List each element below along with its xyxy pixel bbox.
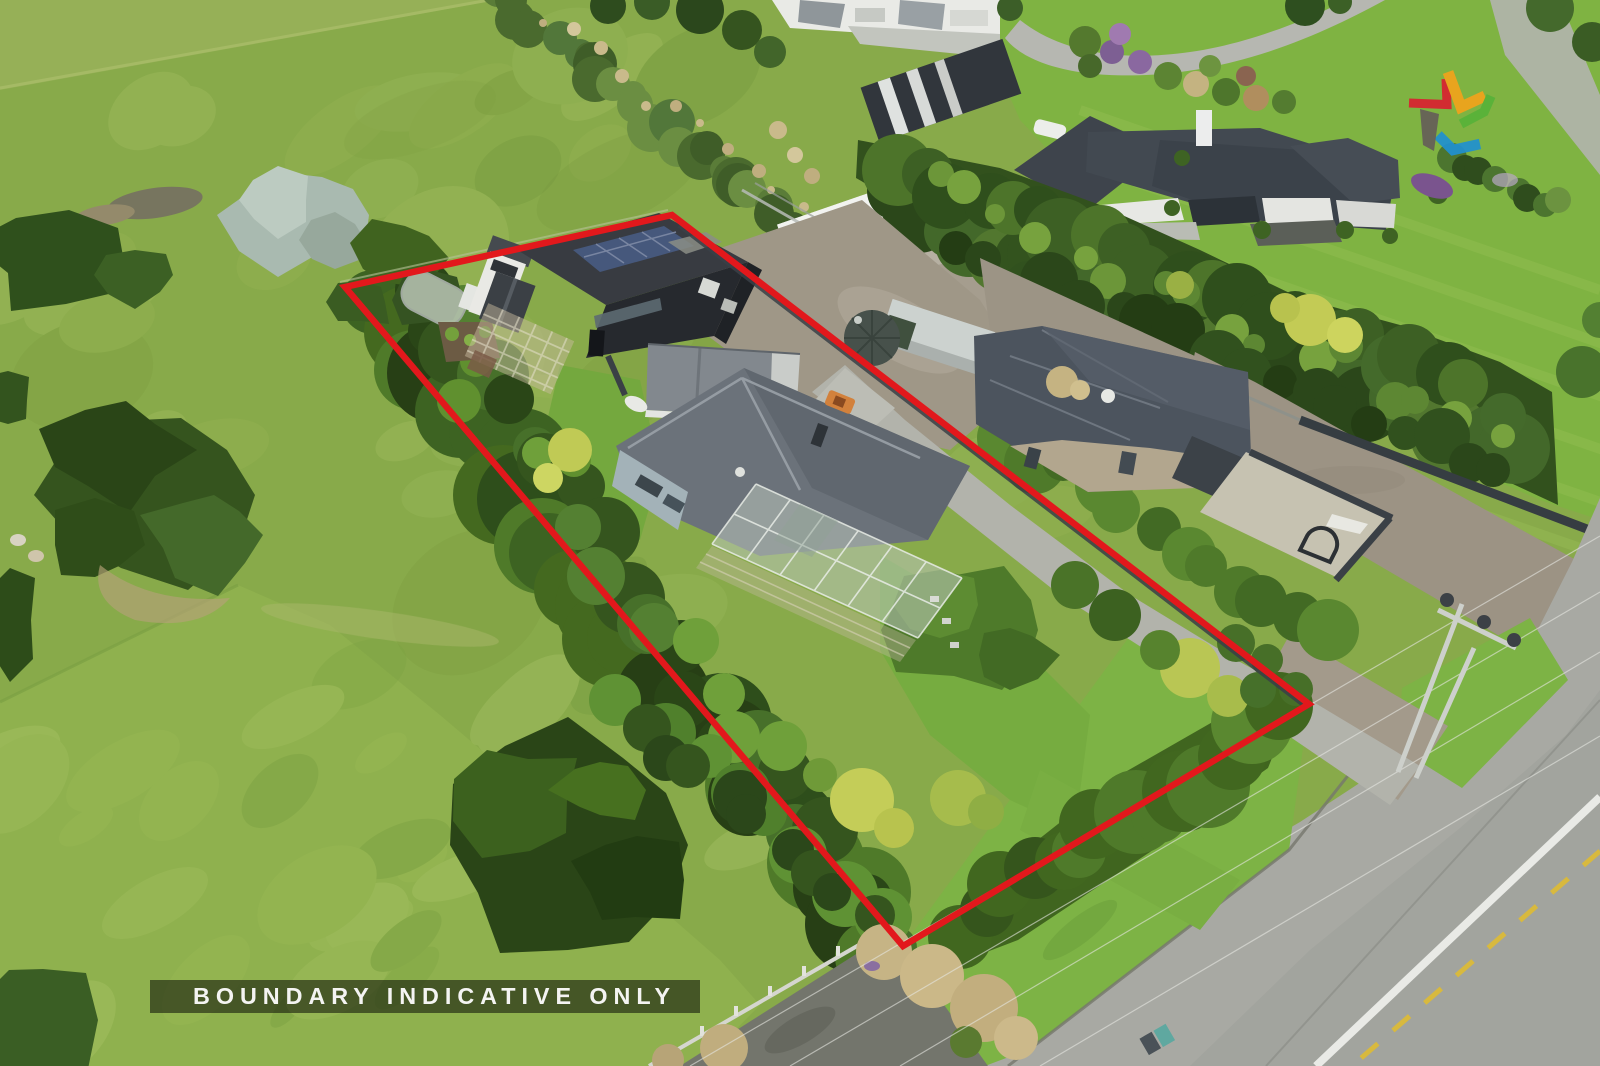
svg-text:BOUNDARY INDICATIVE ONLY: BOUNDARY INDICATIVE ONLY xyxy=(193,983,676,1009)
